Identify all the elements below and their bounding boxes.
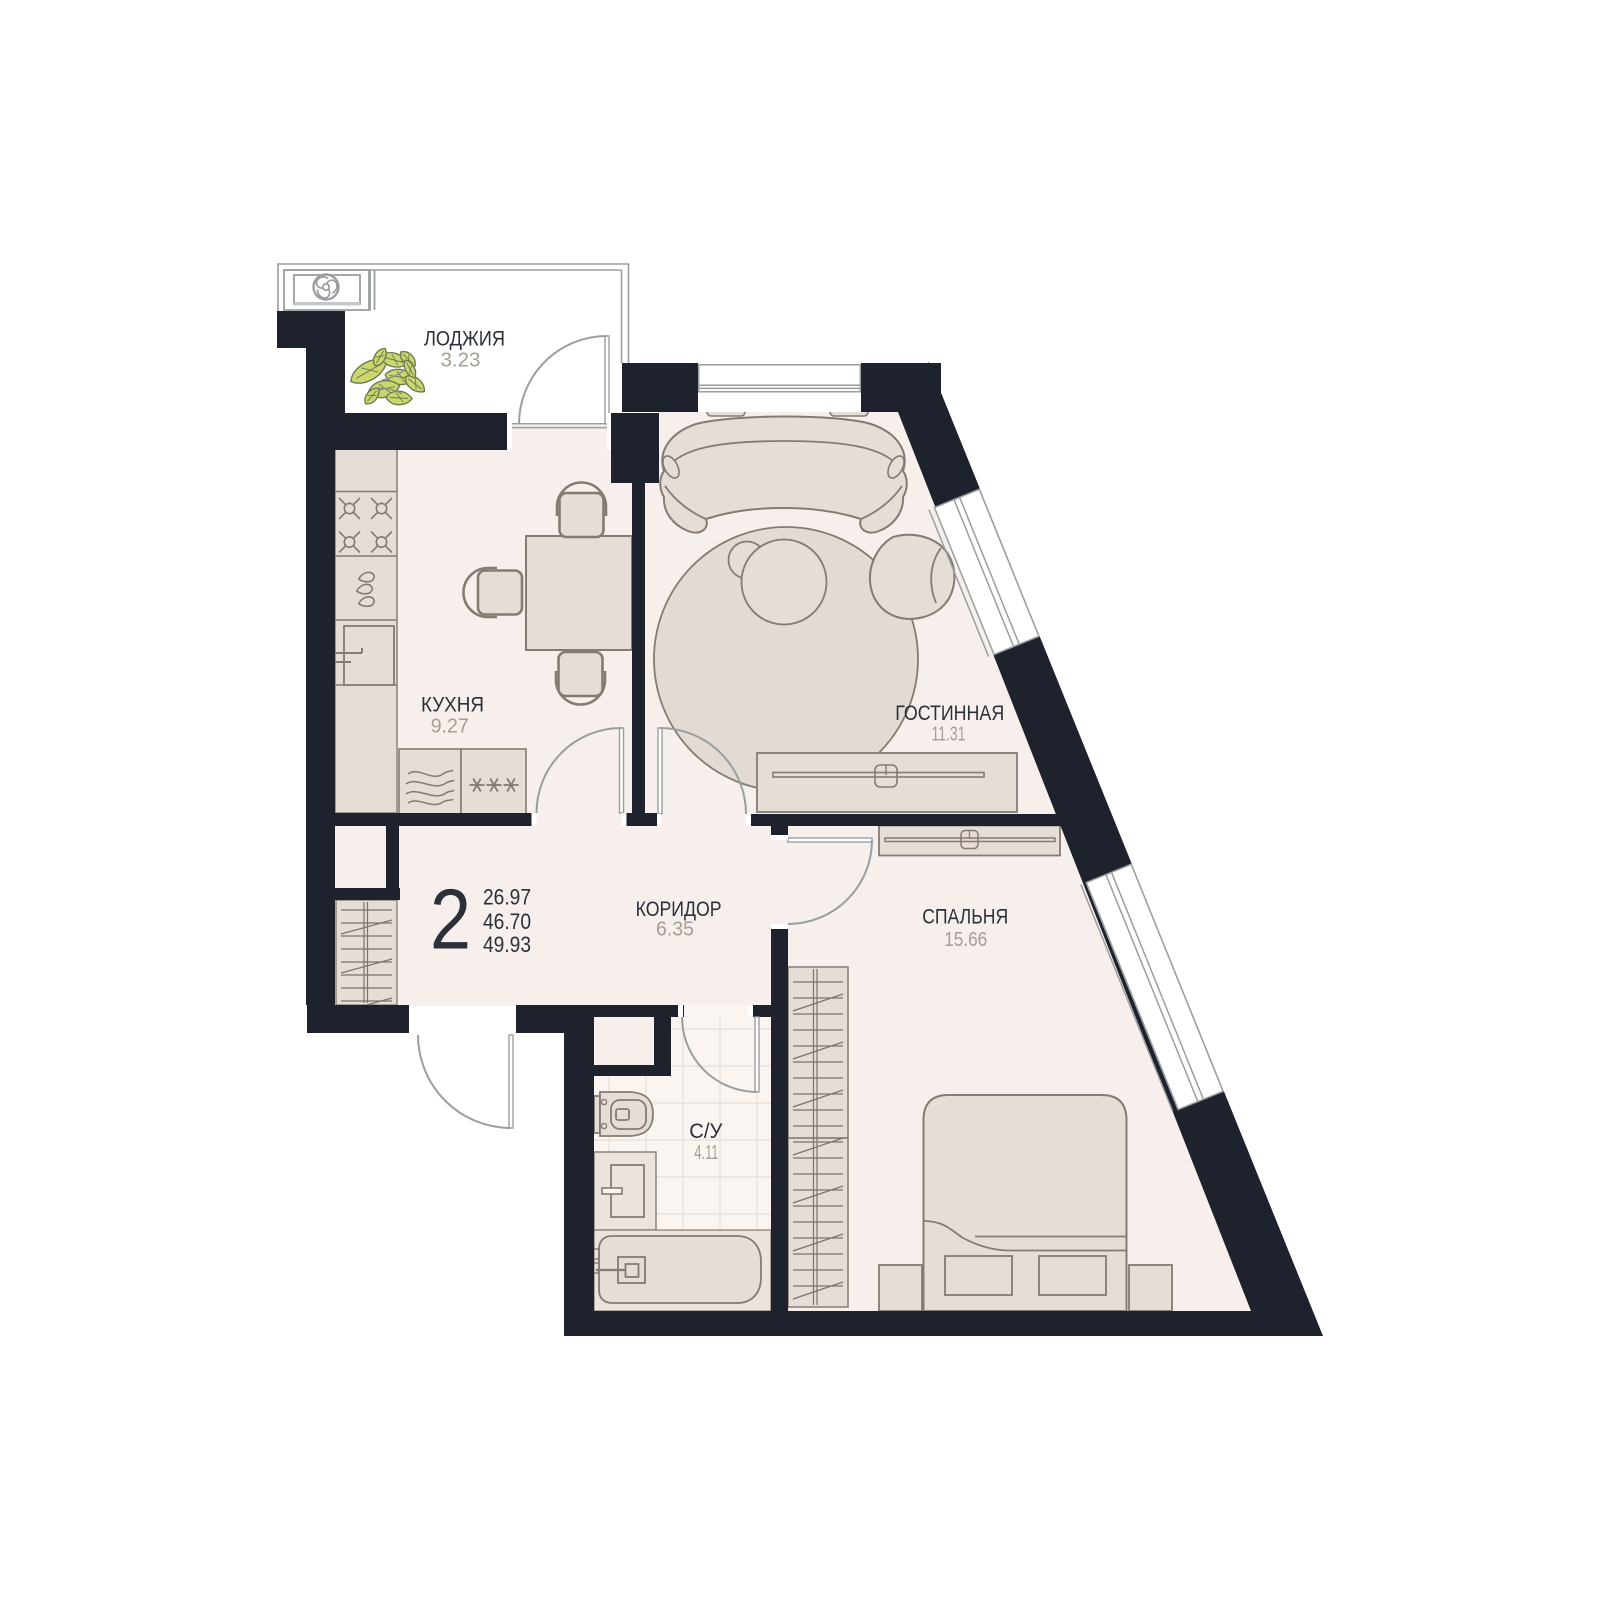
svg-text:9.27: 9.27 bbox=[431, 716, 469, 738]
svg-text:ЛОДЖИЯ: ЛОДЖИЯ bbox=[424, 328, 505, 351]
svg-text:26.97: 26.97 bbox=[483, 884, 531, 909]
svg-text:15.66: 15.66 bbox=[944, 929, 987, 951]
svg-text:6.35: 6.35 bbox=[656, 919, 694, 941]
svg-text:4.11: 4.11 bbox=[694, 1142, 718, 1164]
svg-text:49.93: 49.93 bbox=[483, 932, 531, 957]
svg-text:11.31: 11.31 bbox=[932, 724, 966, 746]
svg-text:СПАЛЬНЯ: СПАЛЬНЯ bbox=[922, 906, 1008, 929]
svg-text:С/У: С/У bbox=[689, 1120, 723, 1143]
svg-text:3.23: 3.23 bbox=[441, 350, 481, 372]
svg-text:2: 2 bbox=[430, 872, 471, 967]
svg-text:ГОСТИННАЯ: ГОСТИННАЯ bbox=[895, 702, 1004, 725]
svg-text:КУХНЯ: КУХНЯ bbox=[421, 694, 484, 717]
svg-text:46.70: 46.70 bbox=[483, 909, 531, 934]
